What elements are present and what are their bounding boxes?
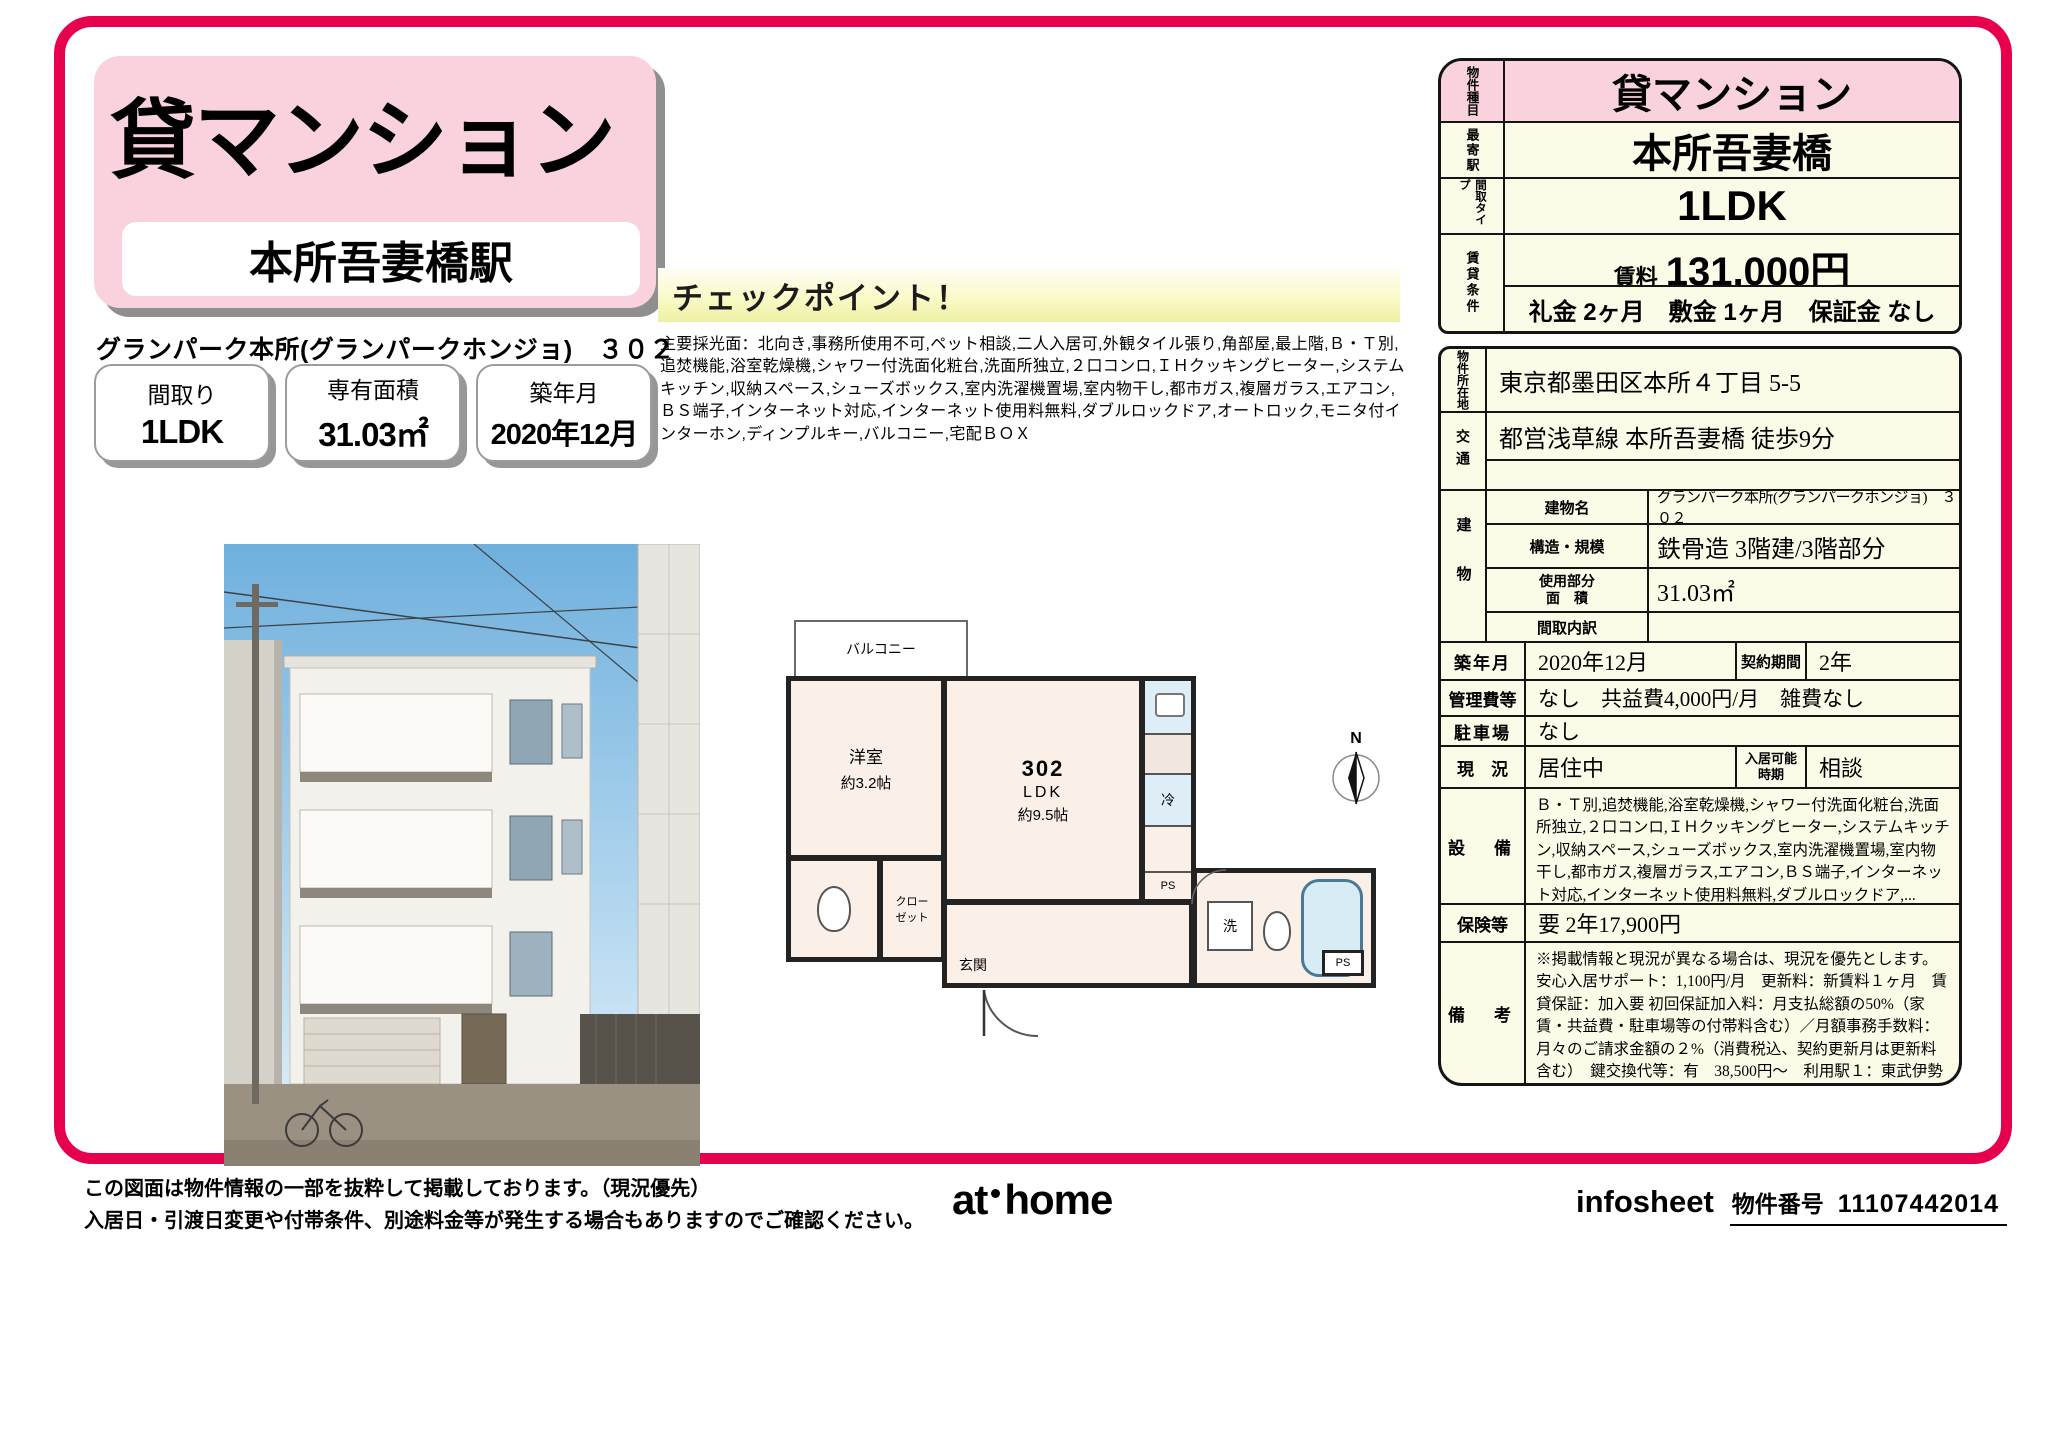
floorplan-kitchen-column: 冷 PS [1140, 676, 1196, 904]
equipment-value: Ｂ・Ｔ別,追焚機能,浴室乾燥機,シャワー付洗面化粧台,洗面所独立,２口コンロ,Ｉ… [1526, 789, 1959, 905]
floorplan-closet: クロー ゼット [878, 856, 946, 962]
summary-terms-value: 礼金 2ヶ月 敷金 1ヶ月 保証金 なし [1505, 287, 1959, 331]
athome-logo-dot-icon [991, 1189, 1000, 1198]
contract-label: 契約期間 [1737, 643, 1807, 681]
parking-value: なし [1526, 717, 1959, 747]
ldk-label: LDK [1023, 784, 1063, 802]
badge-area-label: 専有面積 [327, 371, 419, 405]
movein-label: 入居可能 時期 [1737, 747, 1807, 789]
room-size: 約3.2帖 [841, 772, 892, 793]
building-photo-illustration [224, 544, 700, 1166]
detail-access-value-1: 都営浅草線 本所吾妻橋 徒歩9分 [1487, 413, 1959, 461]
rent-value: 131,000円 [1666, 239, 1851, 287]
badge-built: 築年月 2020年12月 [476, 364, 652, 462]
movein-value: 相談 [1807, 747, 1959, 789]
notes-label: 備 考 [1441, 943, 1526, 1083]
badge-area: 専有面積 31.03㎡ [285, 364, 461, 462]
building-name-label: 建物名 [1487, 491, 1649, 525]
summary-type-value: 貸マンション [1505, 61, 1959, 123]
summary-rent: 賃料 131,000円 [1505, 235, 1959, 287]
summary-station-header: 最寄駅 [1441, 123, 1505, 179]
summary-layout-header: 間取タイプ [1441, 179, 1505, 235]
compass-icon: N [1326, 730, 1386, 813]
stove-icon [1145, 735, 1191, 775]
summary-station-value: 本所吾妻橋 [1505, 123, 1959, 179]
badge-built-value: 2020年12月 [491, 411, 638, 453]
disclaimer-line-1: この図面は物件情報の一部を抜粋して掲載しております。（現況優先） [84, 1172, 710, 1201]
property-number-value: 11107442014 [1838, 1190, 1999, 1219]
layout-detail-label: 間取内訳 [1487, 613, 1649, 643]
insurance-value: 要 2年17,900円 [1526, 905, 1959, 943]
structure-value: 鉄骨造 3階建/3階部分 [1649, 525, 1959, 569]
property-number-label: 物件番号 [1732, 1185, 1824, 1219]
infosheet-label: infosheet [1576, 1184, 1714, 1220]
detail-access-value-2 [1487, 461, 1959, 491]
detail-location-value: 東京都墨田区本所４丁目 5-5 [1487, 349, 1959, 413]
checkpoint-band: チェックポイント！ [658, 268, 1400, 322]
used-area-label: 使用部分 面 積 [1487, 569, 1649, 613]
closet-label: クロー ゼット [896, 893, 929, 925]
property-badges: 間取り 1LDK 専有面積 31.03㎡ 築年月 2020年12月 [94, 364, 652, 462]
summary-table: 物件種目 貸マンション 最寄駅 本所吾妻橋 間取タイプ 1LDK 賃貸条件 賃料… [1438, 58, 1962, 334]
disclaimer-line-2: 入居日・引渡日変更や付帯条件、別途料金等が発生する場合もありますのでご確認くださ… [84, 1204, 924, 1233]
infosheet-page: 貸マンション 本所吾妻橋駅 グランパーク本所(グランパークホンジョ) ３０２ 間… [0, 0, 2056, 1453]
fees-label: 管理費等 [1441, 681, 1526, 717]
checkpoint-title: チェックポイント！ [672, 273, 969, 318]
summary-layout-value: 1LDK [1505, 179, 1959, 235]
infosheet-row: infosheet 物件番号 11107442014 [1576, 1184, 2007, 1226]
floorplan-western-room: 洋室 約3.2帖 [786, 676, 946, 860]
unit-number: 302 [1022, 756, 1065, 782]
contract-value: 2年 [1807, 643, 1959, 681]
toilet-icon [1263, 911, 1291, 951]
parking-label: 駐車場 [1441, 717, 1526, 747]
layout-detail-value [1649, 613, 1959, 643]
checkpoint-body: 主要採光面：北向き,事務所使用不可,ペット相談,二人入居可,外観タイル張り,角部… [660, 334, 1408, 446]
toilet-icon [817, 886, 851, 932]
station-name-box: 本所吾妻橋駅 [122, 222, 640, 296]
floor-plan: バルコニー 洋室 約3.2帖 クロー ゼット 玄関 302 LDK 約9.5帖 … [770, 582, 1392, 1010]
compass-north-label: N [1326, 730, 1386, 748]
ldk-size: 約9.5帖 [1018, 804, 1069, 825]
built-value: 2020年12月 [1526, 643, 1737, 681]
badge-layout-value: 1LDK [141, 413, 223, 451]
washer-label: 洗 [1207, 901, 1253, 951]
notes-value: ※掲載情報と現況が異なる場合は、現況を優先とします。 安心入居サポート：1,10… [1526, 943, 1959, 1083]
athome-logo-home: home [1004, 1176, 1112, 1224]
badge-area-value: 31.03㎡ [318, 408, 428, 456]
floorplan-ldk: 302 LDK 約9.5帖 [942, 676, 1144, 904]
athome-logo-at: at [952, 1176, 987, 1224]
property-number: 物件番号 11107442014 [1730, 1185, 2007, 1226]
status-label: 現 況 [1441, 747, 1526, 789]
entrance-label: 玄関 [959, 955, 987, 975]
rent-label: 賃料 [1614, 260, 1658, 287]
insurance-label: 保険等 [1441, 905, 1526, 943]
floorplan-balcony: バルコニー [794, 620, 968, 678]
floorplan-entrance-hall: 玄関 [942, 900, 1194, 988]
detail-location-header: 物件所在地 [1441, 349, 1487, 413]
kitchen-sink-icon [1145, 681, 1191, 735]
summary-terms-header: 賃貸条件 [1441, 235, 1505, 331]
property-type-banner: 貸マンション 本所吾妻橋駅 [94, 56, 656, 308]
used-area-value: 31.03㎡ [1649, 569, 1959, 613]
detail-building-header: 建物 [1441, 491, 1487, 643]
athome-logo: at home [952, 1176, 1112, 1224]
pipe-shaft-b: PS [1322, 950, 1364, 976]
status-value: 居住中 [1526, 747, 1737, 789]
detail-table: 物件所在地 東京都墨田区本所４丁目 5-5 交通 都営浅草線 本所吾妻橋 徒歩9… [1438, 346, 1962, 1086]
fees-value: なし 共益費4,000円/月 雑費なし [1526, 681, 1959, 717]
room-name: 洋室 [849, 743, 883, 768]
structure-label: 構造・規模 [1487, 525, 1649, 569]
equipment-label: 設 備 [1441, 789, 1526, 905]
fridge-label: 冷 [1145, 775, 1191, 827]
summary-type-header: 物件種目 [1441, 61, 1505, 123]
floorplan-lavatory [786, 856, 882, 962]
built-label: 築年月 [1441, 643, 1526, 681]
detail-access-header: 交通 [1441, 413, 1487, 491]
pipe-shaft-a: PS [1145, 871, 1191, 899]
badge-layout: 間取り 1LDK [94, 364, 270, 462]
building-photo [224, 544, 700, 1166]
badge-built-label: 築年月 [530, 374, 599, 408]
badge-layout-label: 間取り [148, 376, 217, 410]
building-name-line: グランパーク本所(グランパークホンジョ) ３０２ [96, 330, 675, 366]
property-type-title: 貸マンション [110, 70, 614, 195]
building-name-value: グランパーク本所(グランパークホンジョ) ３０２ [1649, 491, 1959, 525]
